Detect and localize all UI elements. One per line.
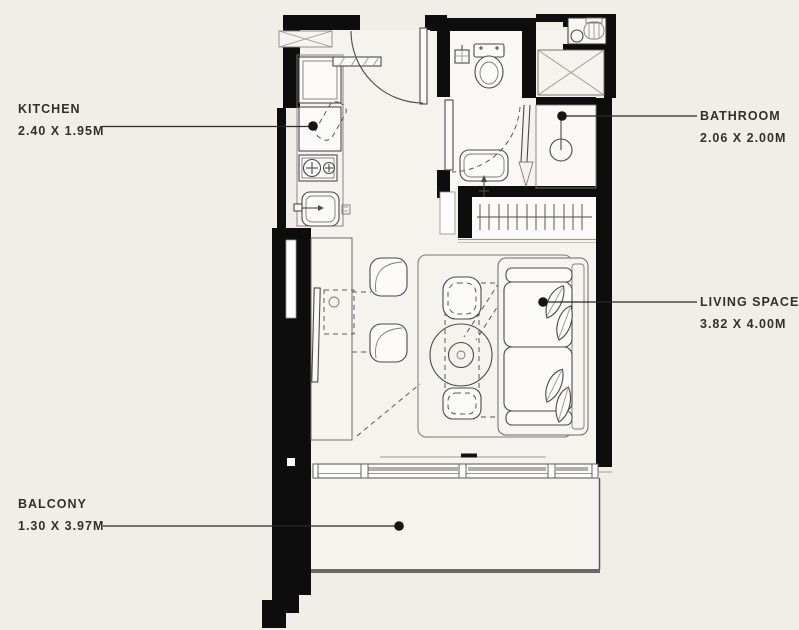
wall-notch: [287, 458, 295, 466]
kitchen-dimensions: 2.40 X 1.95M: [18, 121, 104, 143]
floor-plan: KITCHEN 2.40 X 1.95M BATHROOM 2.06 X 2.0…: [0, 0, 799, 630]
living-space-label: LIVING SPACE 3.82 X 4.00M: [700, 292, 799, 335]
bathroom-leader-dot: [557, 111, 567, 121]
duct: [440, 192, 455, 234]
bathroom-door-leaf: [445, 100, 453, 170]
floor-seat: [443, 277, 481, 319]
living-space-leader-dot: [538, 297, 548, 307]
kitchen-label: KITCHEN 2.40 X 1.95M: [18, 99, 104, 142]
bathroom-label: BATHROOM 2.06 X 2.00M: [700, 106, 786, 149]
bathroom-dimensions: 2.06 X 2.00M: [700, 128, 786, 150]
wardrobe-hanging-rail: [458, 197, 596, 243]
dining-chair: [370, 258, 407, 296]
kitchen-cabinet: [299, 107, 341, 151]
stove-icon: [299, 155, 337, 181]
shaft-x-box: [279, 31, 332, 47]
living-space-dimensions: 3.82 X 4.00M: [700, 314, 799, 336]
kitchen-leader-dot: [308, 121, 318, 131]
wardrobe-x-box: [538, 50, 604, 95]
balcony-name: BALCONY: [18, 494, 104, 516]
balcony-label: BALCONY 1.30 X 3.97M: [18, 494, 104, 537]
balcony-dimensions: 1.30 X 3.97M: [18, 516, 104, 538]
living-space-name: LIVING SPACE: [700, 292, 799, 314]
kitchen-name: KITCHEN: [18, 99, 104, 121]
floor-seat: [443, 388, 481, 419]
dining-chair: [370, 324, 407, 362]
balcony-leader-dot: [394, 521, 404, 531]
sofa: [498, 258, 588, 435]
floor-plan-drawing: [0, 0, 799, 630]
water-heater-icon: [568, 18, 606, 44]
balcony-floor: [311, 478, 600, 570]
wall-window-niche: [286, 240, 296, 318]
entrance-door-leaf: [420, 28, 427, 104]
toilet-icon: [474, 44, 504, 88]
bathroom-name: BATHROOM: [700, 106, 786, 128]
